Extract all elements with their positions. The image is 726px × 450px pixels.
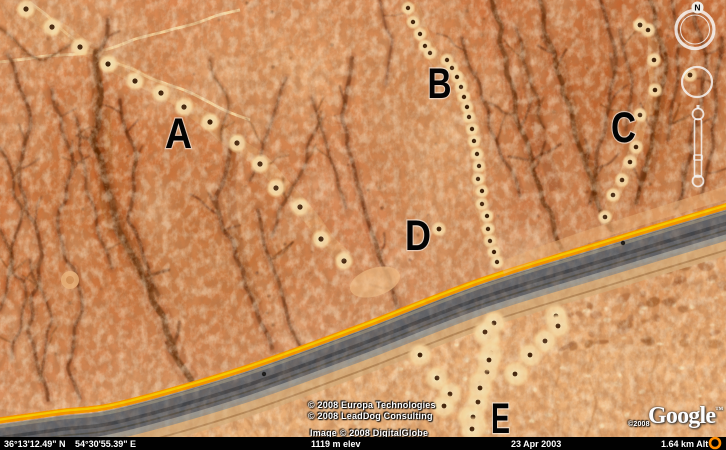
svg-text:E: E: [491, 395, 510, 443]
svg-text:B: B: [428, 60, 452, 108]
svg-text:D: D: [405, 212, 431, 260]
svg-text:N: N: [694, 3, 700, 13]
svg-text:C: C: [611, 104, 636, 152]
svg-text:A: A: [165, 110, 192, 158]
